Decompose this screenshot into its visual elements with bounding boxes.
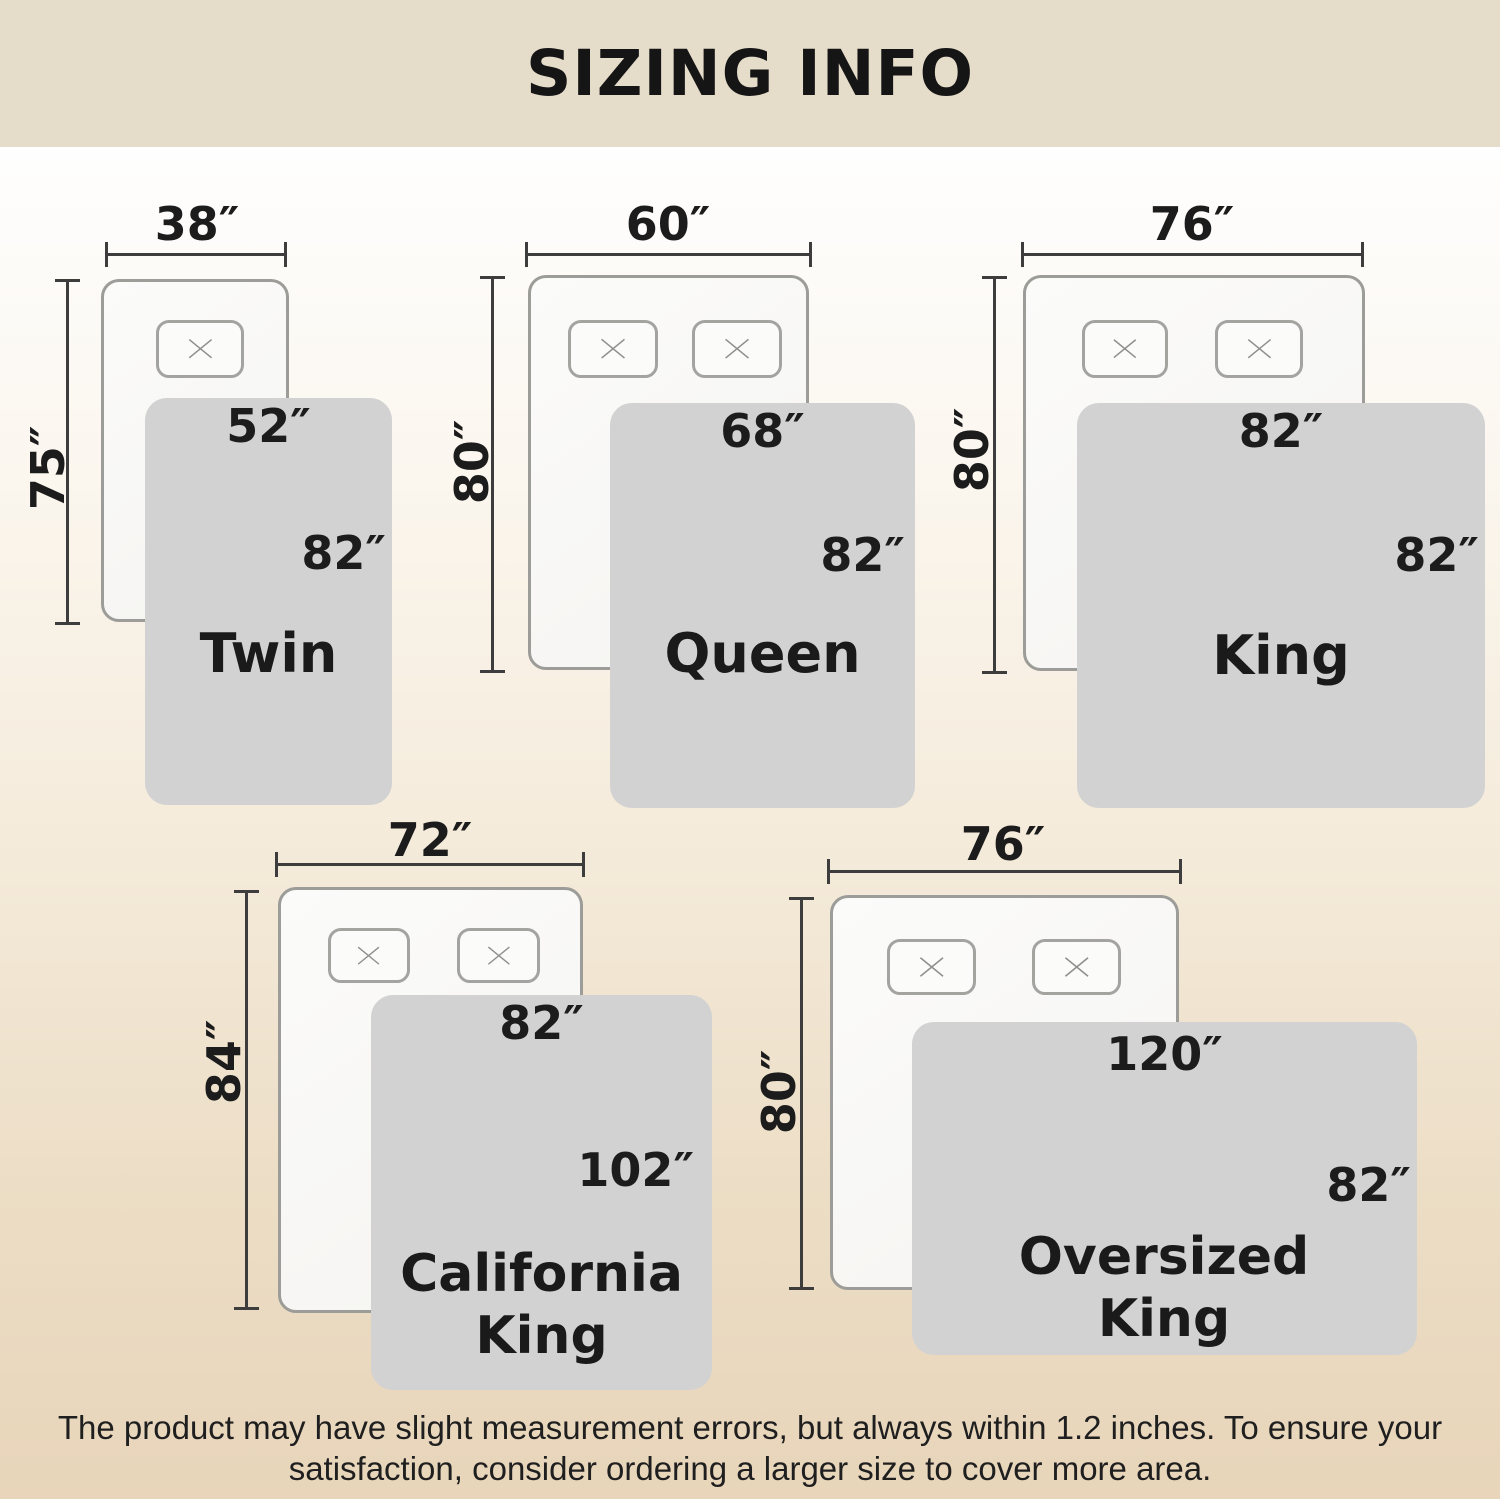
pillow-icon bbox=[887, 939, 976, 995]
blanket-width-label: 82″ bbox=[1077, 407, 1485, 457]
pillow-icon bbox=[692, 320, 782, 378]
mattress-width-label: 76″ bbox=[943, 820, 1063, 870]
dim-tick bbox=[480, 670, 505, 673]
pillow-icon bbox=[328, 928, 410, 983]
mattress-width-label: 38″ bbox=[137, 200, 257, 250]
x-icon bbox=[587, 331, 639, 366]
blanket-length-label: 82″ bbox=[228, 529, 386, 579]
pillow-icon bbox=[156, 320, 244, 378]
dim-tick bbox=[1361, 242, 1364, 267]
dim-tick bbox=[982, 671, 1007, 674]
dim-tick bbox=[480, 276, 505, 279]
dim-tick bbox=[789, 897, 814, 900]
x-icon bbox=[175, 331, 226, 366]
blanket bbox=[1077, 403, 1485, 808]
x-icon bbox=[711, 331, 763, 366]
blanket-width-label: 68″ bbox=[610, 407, 915, 457]
blanket-width-label: 82″ bbox=[371, 999, 712, 1049]
header-banner: SIZING INFO bbox=[0, 0, 1500, 147]
pillow-icon bbox=[568, 320, 658, 378]
pillow-icon bbox=[1032, 939, 1121, 995]
disclaimer-line-1: The product may have slight measurement … bbox=[0, 1408, 1500, 1449]
page-title: SIZING INFO bbox=[526, 37, 974, 110]
dim-tick bbox=[1179, 859, 1182, 884]
mattress-length-label: 75″ bbox=[24, 408, 74, 528]
blanket bbox=[610, 403, 915, 808]
width-dim-line bbox=[105, 253, 287, 256]
mattress-length-label: 80″ bbox=[448, 402, 498, 522]
blanket bbox=[145, 398, 392, 805]
dim-tick bbox=[1021, 242, 1024, 267]
blanket-width-label: 120″ bbox=[912, 1030, 1417, 1080]
sizing-infographic: SIZING INFO 38″ 75″ 52″ 82″ Twin 60″ 80″ bbox=[0, 0, 1500, 1499]
x-icon bbox=[1234, 331, 1285, 366]
dim-tick bbox=[275, 852, 278, 877]
dim-tick bbox=[55, 622, 80, 625]
mattress-length-label: 80″ bbox=[755, 1032, 805, 1152]
size-name: California King bbox=[371, 1243, 712, 1368]
blanket-length-label: 82″ bbox=[1319, 531, 1479, 581]
size-name: King bbox=[1077, 624, 1485, 689]
x-icon bbox=[906, 950, 957, 984]
disclaimer: The product may have slight measurement … bbox=[0, 1408, 1500, 1490]
dim-tick bbox=[809, 242, 812, 267]
dim-tick bbox=[55, 279, 80, 282]
pillow-icon bbox=[1215, 320, 1303, 378]
disclaimer-line-2: satisfaction, consider ordering a larger… bbox=[0, 1449, 1500, 1490]
mattress-width-label: 76″ bbox=[1132, 200, 1252, 250]
size-name: Twin bbox=[145, 622, 392, 687]
pillow-icon bbox=[457, 928, 540, 983]
dim-tick bbox=[525, 242, 528, 267]
width-dim-line bbox=[1021, 253, 1364, 256]
mattress-width-label: 60″ bbox=[608, 200, 728, 250]
size-name: Queen bbox=[610, 622, 915, 687]
dim-tick bbox=[234, 890, 259, 893]
dim-tick bbox=[234, 1307, 259, 1310]
dim-tick bbox=[789, 1287, 814, 1290]
width-dim-line bbox=[525, 253, 812, 256]
mattress-width-label: 72″ bbox=[370, 816, 490, 866]
blanket-width-label: 52″ bbox=[145, 402, 392, 452]
dim-tick bbox=[827, 859, 830, 884]
mattress-length-label: 80″ bbox=[948, 390, 998, 510]
mattress-length-label: 84″ bbox=[200, 1002, 250, 1122]
dim-tick bbox=[982, 276, 1007, 279]
dim-tick bbox=[582, 852, 585, 877]
x-icon bbox=[1051, 950, 1102, 984]
size-name: Oversized King bbox=[999, 1226, 1329, 1351]
blanket-length-label: 102″ bbox=[494, 1146, 694, 1196]
dim-tick bbox=[284, 242, 287, 267]
x-icon bbox=[1100, 331, 1150, 366]
x-icon bbox=[345, 939, 392, 972]
blanket-length-label: 82″ bbox=[1251, 1161, 1411, 1211]
blanket-length-label: 82″ bbox=[745, 531, 905, 581]
x-icon bbox=[475, 939, 523, 972]
pillow-icon bbox=[1082, 320, 1168, 378]
dim-tick bbox=[105, 242, 108, 267]
